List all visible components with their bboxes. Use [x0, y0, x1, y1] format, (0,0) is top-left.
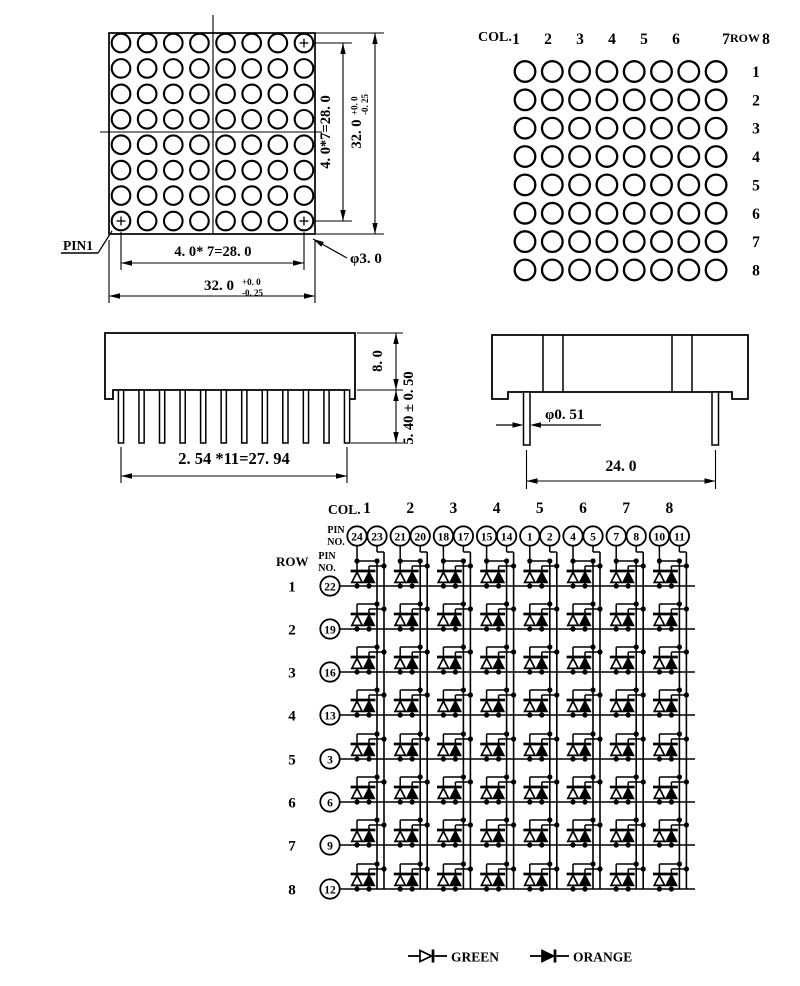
pin: [262, 390, 267, 443]
dim-pin-length: 5. 40 ± 0. 50: [401, 371, 417, 444]
pin: [344, 390, 349, 443]
green-led-diode: [395, 658, 405, 668]
orange-led-diode: [407, 875, 417, 885]
green-led-diode: [395, 745, 405, 755]
junction-dot: [366, 583, 371, 588]
led-dot: [295, 110, 314, 129]
green-led-symbol: [420, 951, 432, 962]
green-led-diode: [438, 831, 448, 841]
orange-led-diode: [580, 745, 590, 755]
junction-dot: [554, 736, 559, 741]
junction-dot: [570, 886, 575, 891]
green-led-diode: [352, 658, 362, 668]
green-led-diode: [438, 658, 448, 668]
junction-dot: [374, 817, 379, 822]
led-dot: [679, 118, 700, 139]
col-pin-number: 2: [547, 532, 553, 544]
junction-dot: [381, 822, 386, 827]
junction-dot: [418, 558, 423, 563]
green-led-diode: [395, 701, 405, 711]
junction-dot: [677, 817, 682, 822]
led-dot: [216, 186, 235, 205]
green-led-diode: [654, 745, 664, 755]
green-led-diode: [568, 745, 578, 755]
junction-dot: [441, 712, 446, 717]
col-number: 6: [672, 31, 680, 48]
col-pin-number: 14: [501, 532, 513, 544]
junction-dot: [547, 687, 552, 692]
junction-dot: [410, 712, 415, 717]
orange-led-diode: [537, 615, 547, 625]
led-dot: [515, 118, 536, 139]
green-led-diode: [525, 658, 535, 668]
pin: [283, 390, 288, 443]
green-led-diode: [395, 572, 405, 582]
col-number: 3: [576, 31, 584, 48]
junction-dot: [554, 649, 559, 654]
dim-arrow: [393, 379, 398, 390]
junction-dot: [484, 583, 489, 588]
junction-dot: [354, 756, 359, 761]
green-led-diode: [395, 615, 405, 625]
orange-led-diode: [407, 572, 417, 582]
led-dot: [679, 260, 700, 281]
junction-dot: [641, 563, 646, 568]
junction-dot: [461, 774, 466, 779]
green-led-diode: [654, 658, 664, 668]
pin-no-label: NO.: [327, 537, 345, 548]
orange-led-diode: [666, 788, 676, 798]
junction-dot: [634, 558, 639, 563]
junction-dot: [484, 756, 489, 761]
junction-dot: [511, 736, 516, 741]
schematic-row-number: 7: [288, 839, 296, 855]
green-led-diode: [611, 745, 621, 755]
junction-dot: [527, 583, 532, 588]
orange-led-diode: [450, 572, 460, 582]
led-dot: [242, 110, 261, 129]
orange-led-diode: [666, 658, 676, 668]
led-dot: [242, 34, 261, 53]
green-led-diode: [525, 745, 535, 755]
pin: [303, 390, 308, 443]
junction-dot: [626, 842, 631, 847]
row-number: 6: [752, 206, 760, 223]
junction-dot: [453, 626, 458, 631]
junction-dot: [539, 712, 544, 717]
junction-dot: [398, 799, 403, 804]
green-led-diode: [438, 615, 448, 625]
dim-pin-dia: φ0. 51: [545, 407, 584, 423]
led-dot: [112, 186, 131, 205]
junction-dot: [468, 649, 473, 654]
junction-dot: [684, 606, 689, 611]
junction-dot: [366, 669, 371, 674]
led-dot: [515, 231, 536, 252]
junction-dot: [418, 731, 423, 736]
green-led-diode: [481, 831, 491, 841]
junction-dot: [539, 886, 544, 891]
junction-dot: [677, 731, 682, 736]
junction-dot: [366, 712, 371, 717]
schematic-row-number: 4: [288, 709, 296, 725]
green-led-diode: [395, 875, 405, 885]
dim-arrow: [372, 223, 377, 234]
orange-led-diode: [623, 658, 633, 668]
orange-led-diode: [623, 701, 633, 711]
led-dot: [295, 59, 314, 78]
junction-dot: [590, 601, 595, 606]
junction-dot: [511, 779, 516, 784]
green-led-diode: [481, 658, 491, 668]
junction-dot: [684, 822, 689, 827]
junction-dot: [539, 583, 544, 588]
led-dot: [679, 231, 700, 252]
junction-dot: [425, 866, 430, 871]
junction-dot: [684, 779, 689, 784]
dim-width-tol-minus: -0. 25: [242, 288, 263, 298]
junction-dot: [461, 817, 466, 822]
led-dot: [190, 135, 209, 154]
dim-arrow: [336, 473, 347, 478]
orange-led-diode: [537, 875, 547, 885]
led-dot: [242, 161, 261, 180]
led-dot: [242, 186, 261, 205]
orange-led-diode: [407, 615, 417, 625]
junction-dot: [504, 731, 509, 736]
dim-arrow: [513, 422, 524, 427]
led-dot: [597, 260, 618, 281]
col-pin-number: 11: [674, 532, 685, 544]
led-dot: [569, 231, 590, 252]
green-led-diode: [568, 615, 578, 625]
junction-dot: [461, 558, 466, 563]
green-led-diode: [568, 831, 578, 841]
junction-dot: [570, 626, 575, 631]
orange-led-diode: [666, 831, 676, 841]
dim-row-pitch: 4. 0*7=28. 0: [318, 95, 334, 169]
junction-dot: [374, 774, 379, 779]
junction-dot: [398, 712, 403, 717]
led-dot: [269, 135, 288, 154]
led-matrix-technical-drawing: 4. 0*7=28. 032. 0+0. 0-0. 254. 0* 7=28. …: [0, 0, 800, 986]
schematic-col-number: 8: [666, 500, 674, 517]
led-dot: [542, 118, 563, 139]
package-body: [492, 335, 748, 399]
row-pin-number: 16: [324, 668, 336, 680]
junction-dot: [657, 669, 662, 674]
junction-dot: [468, 563, 473, 568]
orange-led-diode: [666, 701, 676, 711]
junction-dot: [614, 626, 619, 631]
col-pin-number: 21: [394, 532, 406, 544]
junction-dot: [590, 687, 595, 692]
junction-dot: [496, 886, 501, 891]
green-led-diode: [438, 788, 448, 798]
junction-dot: [374, 687, 379, 692]
junction-dot: [590, 731, 595, 736]
led-dot: [679, 61, 700, 82]
junction-dot: [657, 799, 662, 804]
junction-dot: [410, 842, 415, 847]
schematic-col-number: 2: [406, 500, 414, 517]
schematic-row-number: 3: [288, 666, 296, 682]
junction-dot: [453, 669, 458, 674]
junction-dot: [657, 626, 662, 631]
dim-pin-length-group: 5. 40 ± 0. 50: [401, 371, 417, 444]
junction-dot: [614, 669, 619, 674]
junction-dot: [425, 822, 430, 827]
green-led-diode: [352, 745, 362, 755]
orange-led-diode: [580, 831, 590, 841]
junction-dot: [527, 756, 532, 761]
junction-dot: [468, 606, 473, 611]
junction-dot: [539, 669, 544, 674]
junction-dot: [641, 866, 646, 871]
junction-dot: [461, 601, 466, 606]
junction-dot: [539, 756, 544, 761]
junction-dot: [684, 866, 689, 871]
junction-dot: [425, 779, 430, 784]
junction-dot: [398, 842, 403, 847]
led-dot: [190, 59, 209, 78]
led-dot: [164, 212, 183, 231]
junction-dot: [366, 756, 371, 761]
dim-arrow: [121, 260, 132, 265]
orange-led-diode: [364, 701, 374, 711]
junction-dot: [582, 799, 587, 804]
dim-pin-pitch: 2. 54 *11=27. 94: [178, 449, 290, 468]
orange-led-diode: [364, 658, 374, 668]
col-number: 7: [722, 31, 730, 48]
led-dot: [216, 59, 235, 78]
junction-dot: [496, 583, 501, 588]
junction-dot: [418, 861, 423, 866]
junction-dot: [453, 756, 458, 761]
junction-dot: [366, 842, 371, 847]
junction-dot: [418, 644, 423, 649]
junction-dot: [547, 731, 552, 736]
junction-dot: [527, 712, 532, 717]
junction-dot: [547, 817, 552, 822]
led-dot: [569, 146, 590, 167]
junction-dot: [374, 601, 379, 606]
orange-led-diode: [407, 745, 417, 755]
pin: [712, 392, 719, 445]
junction-dot: [504, 687, 509, 692]
row-pin-number: 9: [327, 841, 333, 853]
col-pin-number: 8: [633, 532, 639, 544]
junction-dot: [511, 563, 516, 568]
orange-led-diode: [364, 831, 374, 841]
orange-led-diode: [537, 701, 547, 711]
led-dot: [542, 203, 563, 224]
led-dot: [164, 135, 183, 154]
junction-dot: [468, 866, 473, 871]
led-dot: [624, 203, 645, 224]
junction-dot: [425, 736, 430, 741]
led-dot: [651, 175, 672, 196]
green-led-diode: [568, 788, 578, 798]
junction-dot: [468, 779, 473, 784]
green-led-diode: [568, 572, 578, 582]
junction-dot: [441, 799, 446, 804]
col-number: 8: [762, 31, 770, 48]
junction-dot: [484, 712, 489, 717]
datasheet-page: 4. 0*7=28. 032. 0+0. 0-0. 254. 0* 7=28. …: [0, 0, 800, 986]
junction-dot: [374, 861, 379, 866]
col-pin-number: 4: [570, 532, 576, 544]
junction-dot: [441, 669, 446, 674]
junction-dot: [634, 817, 639, 822]
junction-dot: [590, 774, 595, 779]
junction-dot: [468, 692, 473, 697]
orange-led-diode: [537, 658, 547, 668]
pin: [324, 390, 329, 443]
led-dot: [269, 85, 288, 104]
orange-led-diode: [666, 572, 676, 582]
pin-no-label: PIN: [318, 551, 336, 562]
orange-led-diode: [537, 745, 547, 755]
dim-width: 32. 0: [204, 278, 234, 294]
row-number: 8: [752, 262, 760, 279]
led-dot: [515, 203, 536, 224]
orange-led-diode: [666, 745, 676, 755]
orange-led-diode: [623, 831, 633, 841]
schematic-col-number: 7: [622, 500, 630, 517]
led-dot: [706, 118, 727, 139]
legend-label: ORANGE: [573, 950, 632, 965]
led-dot: [706, 61, 727, 82]
junction-dot: [554, 563, 559, 568]
green-led-diode: [352, 875, 362, 885]
pin1-leader: [98, 231, 112, 253]
green-led-diode: [525, 701, 535, 711]
junction-dot: [504, 774, 509, 779]
led-dot: [651, 203, 672, 224]
junction-dot: [410, 583, 415, 588]
led-dot: [515, 146, 536, 167]
junction-dot: [626, 756, 631, 761]
orange-led-diode: [493, 788, 503, 798]
junction-dot: [511, 692, 516, 697]
dim-arrow: [109, 293, 120, 298]
row-number: 3: [752, 121, 760, 138]
led-dot: [569, 203, 590, 224]
led-dot: [138, 212, 157, 231]
orange-led-diode: [580, 658, 590, 668]
dim-body-height-group: 8. 0: [370, 350, 386, 372]
pin1-label: PIN1: [63, 238, 93, 253]
junction-dot: [381, 606, 386, 611]
col-pin-number: 7: [613, 532, 619, 544]
led-dot: [706, 260, 727, 281]
row-header-label: ROW: [730, 31, 760, 45]
dim-arrow: [530, 422, 541, 427]
orange-led-diode: [666, 615, 676, 625]
led-dot: [138, 110, 157, 129]
col-number: 2: [544, 31, 552, 48]
junction-dot: [669, 756, 674, 761]
led-dot: [569, 260, 590, 281]
junction-dot: [511, 866, 516, 871]
junction-dot: [554, 692, 559, 697]
green-led-diode: [654, 701, 664, 711]
legend-label: GREEN: [451, 950, 499, 965]
green-led-diode: [611, 572, 621, 582]
junction-dot: [570, 712, 575, 717]
col-pin-number: 23: [371, 532, 383, 544]
led-dot: [216, 161, 235, 180]
green-led-diode: [352, 831, 362, 841]
junction-dot: [582, 756, 587, 761]
junction-dot: [527, 669, 532, 674]
pin: [160, 390, 165, 443]
junction-dot: [374, 731, 379, 736]
junction-dot: [614, 756, 619, 761]
junction-dot: [657, 842, 662, 847]
row-pin-number: 12: [324, 885, 336, 897]
orange-led-diode: [493, 615, 503, 625]
junction-dot: [453, 583, 458, 588]
orange-led-diode: [580, 572, 590, 582]
junction-dot: [547, 644, 552, 649]
junction-dot: [441, 626, 446, 631]
junction-dot: [527, 886, 532, 891]
led-dot: [138, 59, 157, 78]
dim-width-tol-plus: +0. 0: [242, 277, 261, 287]
junction-dot: [614, 583, 619, 588]
led-dot: [679, 90, 700, 111]
junction-dot: [597, 866, 602, 871]
led-dot: [216, 85, 235, 104]
junction-dot: [554, 606, 559, 611]
orange-led-diode: [450, 658, 460, 668]
led-dot: [242, 85, 261, 104]
junction-dot: [504, 644, 509, 649]
orange-led-diode: [407, 701, 417, 711]
junction-dot: [504, 861, 509, 866]
junction-dot: [354, 583, 359, 588]
led-dot: [138, 85, 157, 104]
row-pin-number: 13: [324, 711, 336, 723]
col-pin-number: 1: [527, 532, 533, 544]
orange-led-diode: [493, 658, 503, 668]
pin: [180, 390, 185, 443]
junction-dot: [677, 687, 682, 692]
junction-dot: [657, 756, 662, 761]
led-dot: [164, 85, 183, 104]
led-dot: [112, 34, 131, 53]
junction-dot: [425, 606, 430, 611]
junction-dot: [425, 563, 430, 568]
junction-dot: [381, 866, 386, 871]
green-led-diode: [438, 701, 448, 711]
led-dot: [164, 110, 183, 129]
green-led-diode: [611, 701, 621, 711]
junction-dot: [398, 669, 403, 674]
led-dot: [242, 135, 261, 154]
orange-led-diode: [364, 875, 374, 885]
led-dot: [624, 118, 645, 139]
orange-led-diode: [623, 615, 633, 625]
dim-body-height: 8. 0: [370, 350, 386, 372]
junction-dot: [641, 736, 646, 741]
led-dot: [624, 61, 645, 82]
green-led-diode: [611, 615, 621, 625]
led-dot: [651, 61, 672, 82]
led-dot: [295, 161, 314, 180]
